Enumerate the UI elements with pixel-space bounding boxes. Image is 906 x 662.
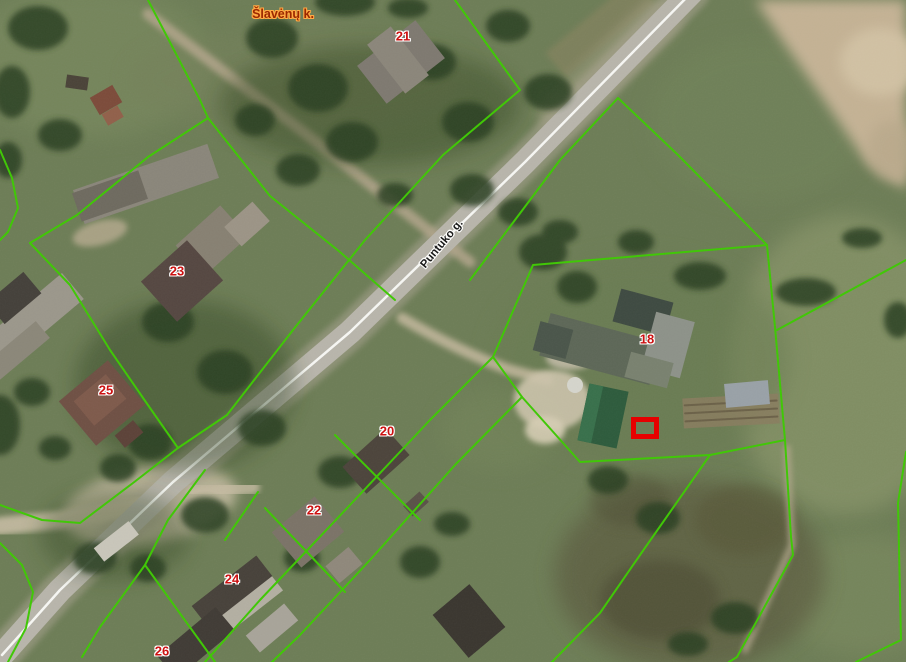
selection-marker-rectangle — [631, 417, 659, 439]
map-canvas[interactable]: Šlavėnų k. Puntuko g. 21 23 25 20 22 24 … — [0, 0, 906, 662]
satellite-imagery — [0, 0, 906, 662]
photo-grain-overlay — [0, 0, 906, 662]
